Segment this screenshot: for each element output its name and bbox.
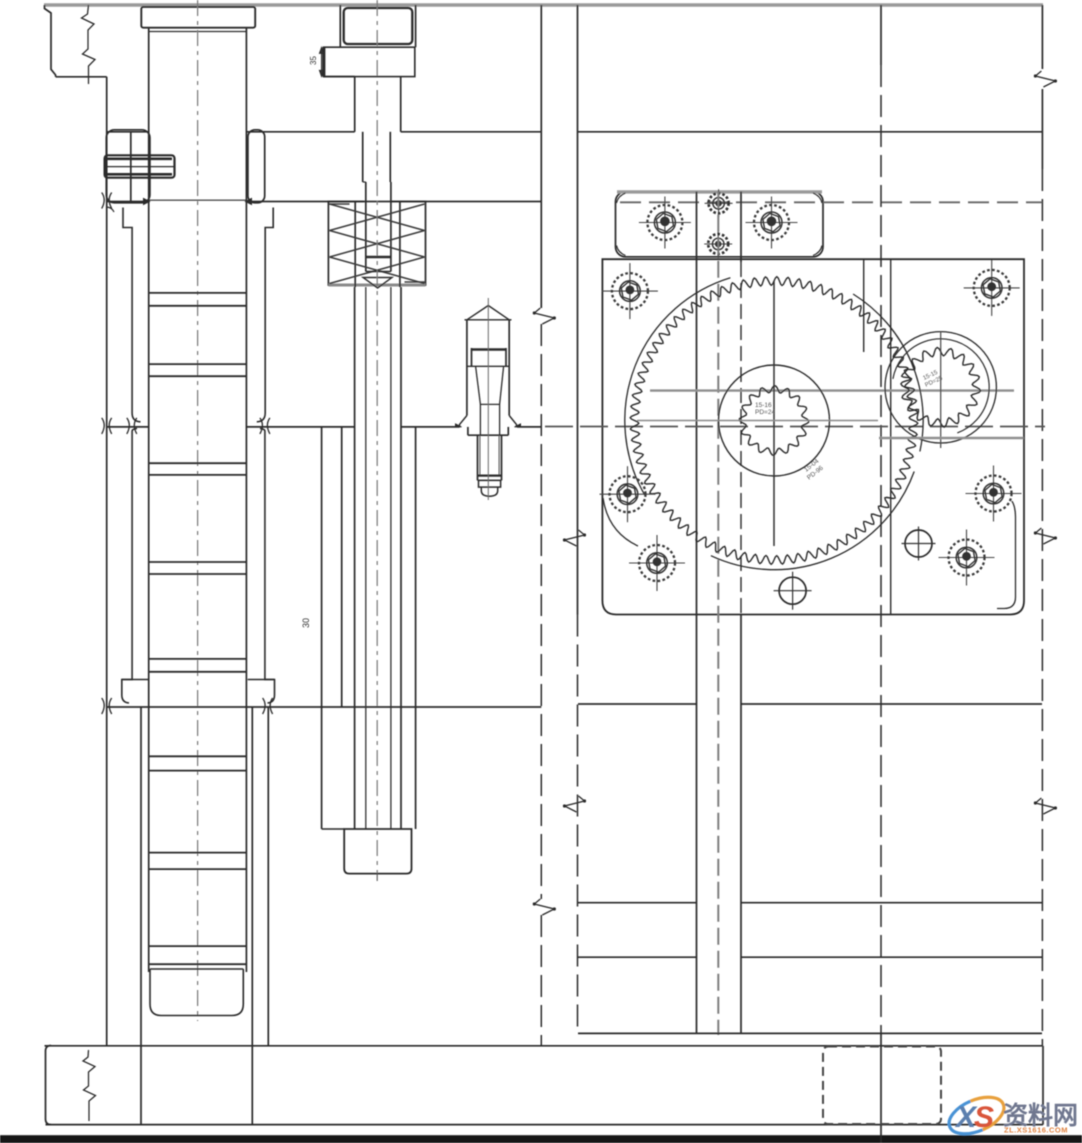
svg-text:S: S — [974, 1101, 994, 1134]
svg-text:15-16: 15-16 — [755, 402, 772, 409]
svg-text:ZL.XS1616.COM: ZL.XS1616.COM — [1004, 1126, 1068, 1135]
svg-text:PD=24: PD=24 — [755, 409, 775, 416]
svg-text:30: 30 — [301, 618, 311, 628]
svg-text:35: 35 — [309, 56, 318, 65]
